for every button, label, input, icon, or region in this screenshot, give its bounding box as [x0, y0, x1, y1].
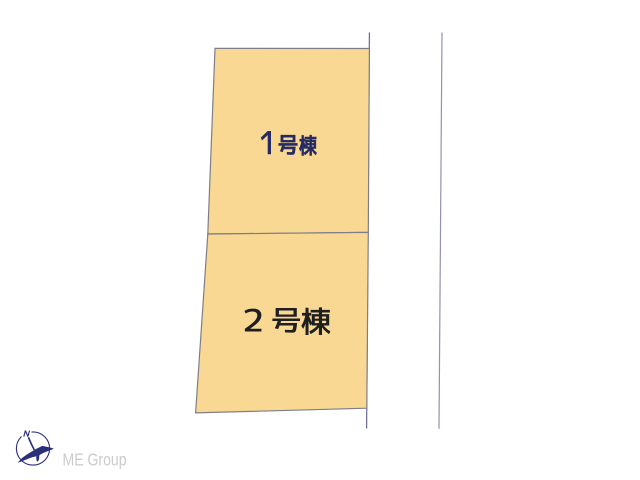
svg-text:ME Group: ME Group: [63, 450, 127, 470]
